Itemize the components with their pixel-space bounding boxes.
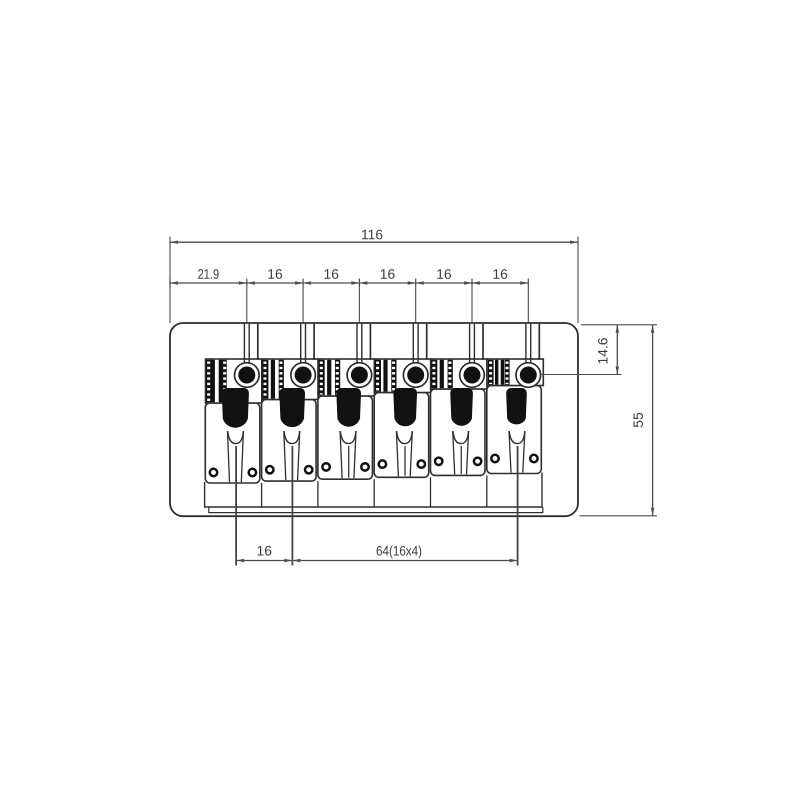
svg-text:16: 16 (324, 267, 340, 282)
svg-text:116: 116 (361, 227, 383, 242)
svg-text:14.6: 14.6 (596, 337, 611, 364)
svg-text:16: 16 (380, 267, 396, 282)
svg-text:16: 16 (436, 267, 452, 282)
svg-text:21.9: 21.9 (198, 267, 220, 282)
svg-text:16: 16 (257, 543, 273, 558)
svg-text:16: 16 (267, 267, 283, 282)
svg-text:55: 55 (631, 412, 646, 428)
svg-text:64(16x4): 64(16x4) (376, 543, 422, 558)
svg-text:16: 16 (492, 267, 508, 282)
